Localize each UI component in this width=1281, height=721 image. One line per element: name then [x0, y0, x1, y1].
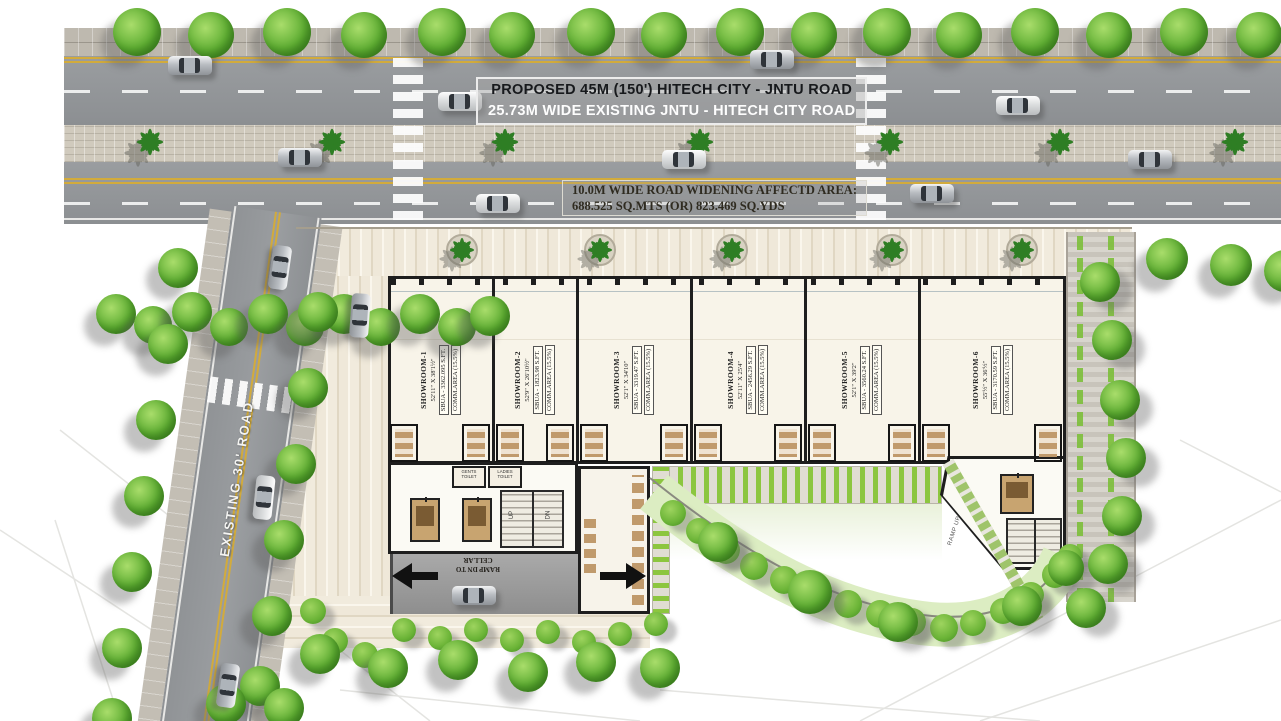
tree	[438, 640, 478, 680]
main-road-label: PROPOSED 45M (150') HITECH CITY - JNTU R…	[476, 77, 867, 125]
tree	[1100, 380, 1140, 420]
tree	[210, 308, 248, 346]
ramp-arrow-left	[392, 563, 438, 589]
tree	[1236, 12, 1281, 58]
tree	[1080, 262, 1120, 302]
hedge-bush	[608, 622, 632, 646]
hedge-bush	[644, 612, 668, 636]
tree	[112, 552, 152, 592]
existing-road-label: 25.73M WIDE EXISTING JNTU - HITECH CITY …	[488, 101, 855, 122]
tree	[1146, 238, 1188, 280]
tree	[716, 8, 764, 56]
car	[476, 194, 520, 213]
tree	[263, 8, 311, 56]
tree	[264, 520, 304, 560]
hedge-bush	[300, 598, 326, 624]
tree	[1048, 550, 1084, 586]
car	[278, 148, 322, 167]
tree	[1086, 12, 1132, 58]
tree	[136, 400, 176, 440]
tree	[188, 12, 234, 58]
ramp-arrow-right	[600, 563, 646, 589]
tree	[567, 8, 615, 56]
tree	[489, 12, 535, 58]
tree	[788, 570, 832, 614]
tree	[1088, 544, 1128, 584]
tree	[1011, 8, 1059, 56]
tree	[276, 444, 316, 484]
hedge-bush	[536, 620, 560, 644]
hedge-bush	[500, 628, 524, 652]
tree	[1160, 8, 1208, 56]
tree	[863, 8, 911, 56]
car	[996, 96, 1040, 115]
tree	[124, 476, 164, 516]
tree	[148, 324, 188, 364]
tree	[252, 596, 292, 636]
proposed-road-label: PROPOSED 45M (150') HITECH CITY - JNTU R…	[488, 80, 855, 101]
tree	[1066, 588, 1106, 628]
hedge-bush	[960, 610, 986, 636]
car	[349, 293, 371, 338]
tree	[791, 12, 837, 58]
tree	[576, 642, 616, 682]
tree	[300, 634, 340, 674]
hedge-bush	[930, 614, 958, 642]
tree	[102, 628, 142, 668]
tree	[158, 248, 198, 288]
tree	[400, 294, 440, 334]
site-plan: PROPOSED 45M (150') HITECH CITY - JNTU R…	[0, 0, 1281, 721]
tree	[96, 294, 136, 334]
tree	[1002, 586, 1042, 626]
tree	[113, 8, 161, 56]
tree	[508, 652, 548, 692]
tree	[248, 294, 288, 334]
car	[168, 56, 212, 75]
tree	[1102, 496, 1142, 536]
tree	[264, 688, 304, 721]
widening-line2: 688.525 SQ.MTS (OR) 823.469 SQ.YDS	[572, 198, 857, 214]
car	[910, 184, 954, 203]
tree	[1092, 320, 1132, 360]
car	[1128, 150, 1172, 169]
car	[662, 150, 706, 169]
hedge-bush	[834, 590, 862, 618]
tree	[341, 12, 387, 58]
tree	[288, 368, 328, 408]
hedge-bush	[740, 552, 768, 580]
tree	[936, 12, 982, 58]
tree	[878, 602, 918, 642]
tree	[698, 522, 738, 562]
hedge-bush	[660, 500, 686, 526]
tree	[1106, 438, 1146, 478]
tree	[298, 292, 338, 332]
road-widening-label: 10.0M WIDE ROAD WIDENING AFFECTD AREA: 6…	[562, 180, 867, 216]
tree	[641, 12, 687, 58]
tree	[640, 648, 680, 688]
tree	[470, 296, 510, 336]
car	[750, 50, 794, 69]
hedge-bush	[464, 618, 488, 642]
car	[452, 586, 496, 605]
tree	[418, 8, 466, 56]
hedge-bush	[392, 618, 416, 642]
tree	[1210, 244, 1252, 286]
widening-line1: 10.0M WIDE ROAD WIDENING AFFECTD AREA:	[572, 182, 857, 198]
tree	[368, 648, 408, 688]
